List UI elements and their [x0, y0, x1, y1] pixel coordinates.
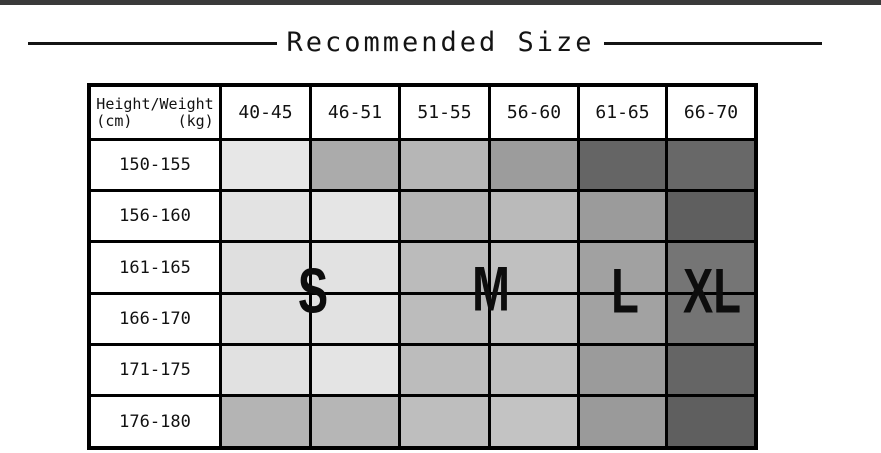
- weight-header-66-70: 66-70: [668, 87, 754, 138]
- weight-header-51-55: 51-55: [401, 87, 488, 138]
- height-row-label: 150-155: [91, 141, 219, 189]
- size-cell: [491, 243, 577, 292]
- corner-header-cell: Height/Weight (cm) (kg): [91, 87, 219, 138]
- title-rule-right: [604, 42, 822, 45]
- size-cell: [491, 295, 577, 343]
- size-cell: [312, 346, 398, 394]
- size-cell: [222, 192, 309, 240]
- size-cell: [312, 192, 398, 240]
- size-cell: [222, 295, 309, 343]
- size-cell: [668, 192, 754, 240]
- size-cell: [222, 141, 309, 189]
- size-cell: [401, 192, 488, 240]
- size-cell: [401, 397, 488, 446]
- size-cell: [312, 397, 398, 446]
- size-cell: [668, 295, 754, 343]
- size-cell: [668, 141, 754, 189]
- size-cell: [580, 397, 665, 446]
- weight-header-46-51: 46-51: [312, 87, 398, 138]
- size-table: Height/Weight (cm) (kg) 40-45 46-51 51-5…: [87, 83, 758, 450]
- size-cell: [668, 243, 754, 292]
- corner-header-line1: Height/Weight: [96, 96, 213, 113]
- size-cell: [401, 243, 488, 292]
- size-cell: [668, 346, 754, 394]
- size-cell: [312, 243, 398, 292]
- height-row-label: 176-180: [91, 397, 219, 446]
- top-bar: [0, 0, 881, 5]
- size-cell: [401, 141, 488, 189]
- size-cell: [312, 295, 398, 343]
- size-cell: [491, 346, 577, 394]
- size-cell: [580, 346, 665, 394]
- weight-header-56-60: 56-60: [491, 87, 577, 138]
- size-cell: [222, 346, 309, 394]
- weight-header-61-65: 61-65: [580, 87, 665, 138]
- weight-header-40-45: 40-45: [222, 87, 309, 138]
- height-row-label: 161-165: [91, 243, 219, 292]
- size-cell: [401, 295, 488, 343]
- size-cell: [222, 397, 309, 446]
- size-cell: [491, 192, 577, 240]
- size-cell: [401, 346, 488, 394]
- size-cell: [491, 397, 577, 446]
- height-row-label: 171-175: [91, 346, 219, 394]
- height-row-label: 156-160: [91, 192, 219, 240]
- size-cell: [668, 397, 754, 446]
- size-cell: [580, 141, 665, 189]
- height-row-label: 166-170: [91, 295, 219, 343]
- size-cell: [491, 141, 577, 189]
- size-cell: [580, 192, 665, 240]
- size-cell: [580, 243, 665, 292]
- corner-header-line2: (cm) (kg): [96, 113, 213, 130]
- size-cell: [312, 141, 398, 189]
- size-cell: [222, 243, 309, 292]
- size-cell: [580, 295, 665, 343]
